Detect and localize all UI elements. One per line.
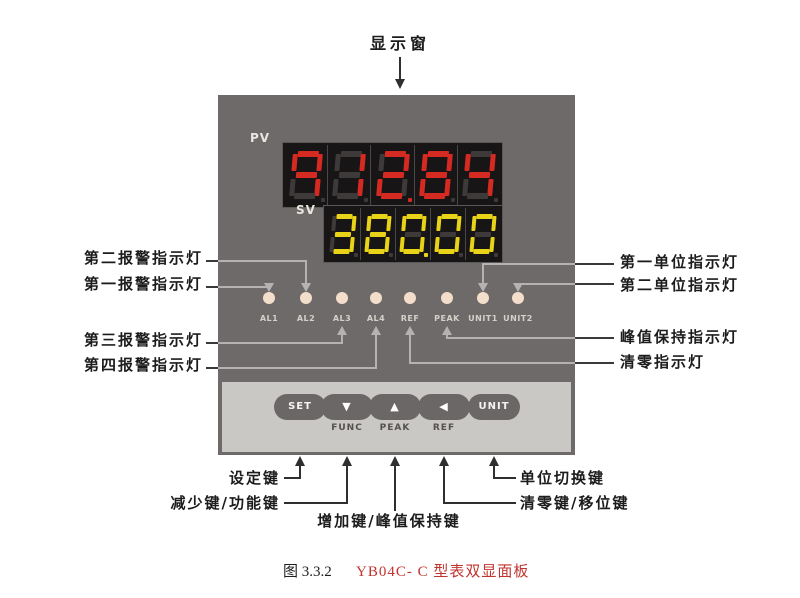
arrowhead-icon bbox=[337, 326, 347, 335]
arrowhead-icon bbox=[295, 456, 305, 466]
set-button[interactable]: SET bbox=[274, 394, 326, 420]
indicator-light-label: UNIT2 bbox=[496, 314, 540, 323]
seven-segment-digit bbox=[375, 151, 409, 199]
arrowhead-icon bbox=[371, 326, 381, 335]
leader-line bbox=[218, 286, 270, 288]
leader-line bbox=[575, 263, 614, 265]
digit-cell bbox=[396, 208, 431, 260]
arrowhead-icon bbox=[439, 456, 449, 466]
seven-segment-digit bbox=[462, 151, 496, 199]
seven-segment-digit bbox=[289, 151, 323, 199]
leader-line bbox=[493, 466, 495, 479]
callout-label-left-0: 第二报警指示灯 bbox=[84, 250, 203, 266]
digit-cell bbox=[328, 145, 371, 205]
indicator-light-unit1 bbox=[477, 292, 489, 304]
decimal-point bbox=[354, 253, 358, 257]
leader-line bbox=[409, 335, 411, 364]
up-triangle-icon: ▲ bbox=[390, 400, 399, 413]
callout-label-right-0: 第一单位指示灯 bbox=[620, 254, 739, 270]
leader-line bbox=[517, 283, 575, 285]
figure-page: 显示窗 PV SV NS+ AL1AL2AL3AL4REFPEAKUNIT1UN… bbox=[0, 0, 800, 598]
digit-cell bbox=[285, 145, 328, 205]
leader-line bbox=[575, 362, 614, 364]
arrowhead-icon bbox=[264, 283, 274, 292]
leader-line bbox=[482, 263, 484, 283]
digit-cell bbox=[431, 208, 466, 260]
seven-segment-digit bbox=[329, 214, 356, 254]
seven-segment-digit bbox=[364, 214, 391, 254]
down-triangle-icon: ▼ bbox=[342, 400, 351, 413]
arrowhead-icon bbox=[442, 326, 452, 335]
shift-ref-button[interactable]: ◀ bbox=[418, 394, 470, 420]
leader-line bbox=[218, 260, 307, 262]
leader-line bbox=[341, 335, 343, 344]
arrowhead-icon bbox=[405, 326, 415, 335]
digit-cell bbox=[458, 145, 500, 205]
decimal-point bbox=[408, 198, 412, 202]
decimal-point bbox=[321, 198, 325, 202]
button-sublabel: REF bbox=[414, 423, 474, 433]
indicator-light-al2 bbox=[300, 292, 312, 304]
callout-label-bottom-3: 清零键/移位键 bbox=[520, 495, 629, 511]
digit-cell bbox=[371, 145, 414, 205]
leader-line bbox=[284, 502, 348, 504]
leader-line bbox=[305, 260, 307, 283]
digit-cell bbox=[466, 208, 500, 260]
sv-display bbox=[323, 205, 503, 263]
digit-cell bbox=[326, 208, 361, 260]
pv-display bbox=[282, 142, 503, 208]
leader-line bbox=[493, 477, 516, 479]
indicator-light-peak bbox=[441, 292, 453, 304]
leader-line bbox=[575, 283, 614, 285]
seven-segment-digit bbox=[332, 151, 366, 199]
leader-line bbox=[446, 337, 575, 339]
meter-panel: PV SV NS+ AL1AL2AL3AL4REFPEAKUNIT1UNIT2S… bbox=[218, 95, 575, 455]
digit-cell bbox=[361, 208, 396, 260]
indicator-light-ref bbox=[404, 292, 416, 304]
seven-segment-digit bbox=[419, 151, 453, 199]
leader-line bbox=[346, 466, 348, 504]
callout-label-left-2: 第三报警指示灯 bbox=[84, 332, 203, 348]
arrowhead-icon bbox=[478, 283, 488, 292]
callout-label-bottom-0: 设定键 bbox=[229, 470, 280, 486]
indicator-light-al4 bbox=[370, 292, 382, 304]
figure-title: YB04C- C 型表双显面板 bbox=[356, 560, 529, 581]
callout-label-left-1: 第一报警指示灯 bbox=[84, 276, 203, 292]
unit-button[interactable]: UNIT bbox=[468, 394, 520, 420]
sv-label: SV bbox=[296, 203, 316, 217]
seven-segment-digit bbox=[434, 214, 461, 254]
arrowhead-icon bbox=[390, 456, 400, 466]
left-triangle-icon: ◀ bbox=[439, 400, 448, 413]
leader-line bbox=[394, 466, 396, 511]
decimal-point bbox=[494, 253, 498, 257]
arrowhead-icon bbox=[301, 283, 311, 292]
leader-line bbox=[299, 466, 301, 479]
arrowhead-icon bbox=[513, 283, 523, 292]
callout-label-right-1: 第二单位指示灯 bbox=[620, 277, 739, 293]
decimal-point bbox=[389, 253, 393, 257]
indicator-light-al3 bbox=[336, 292, 348, 304]
arrowhead-icon bbox=[395, 79, 405, 89]
decimal-point bbox=[424, 253, 428, 257]
leader-line bbox=[409, 362, 575, 364]
arrowhead-icon bbox=[489, 456, 499, 466]
leader-line bbox=[446, 335, 448, 339]
callout-label-bottom-2: 增加键/峰值保持键 bbox=[299, 513, 479, 529]
decimal-point bbox=[459, 253, 463, 257]
leader-line bbox=[482, 263, 575, 265]
display-window-label: 显示窗 bbox=[340, 30, 460, 54]
callout-label-left-3: 第四报警指示灯 bbox=[84, 357, 203, 373]
decimal-point bbox=[451, 198, 455, 202]
indicator-light-unit2 bbox=[512, 292, 524, 304]
leader-line bbox=[443, 466, 445, 504]
callout-label-right-2: 峰值保持指示灯 bbox=[620, 329, 739, 345]
decimal-point bbox=[364, 198, 368, 202]
leader-line bbox=[375, 335, 377, 369]
leader-line bbox=[443, 502, 516, 504]
increase-peak-button[interactable]: ▲ bbox=[369, 394, 421, 420]
leader-line bbox=[575, 337, 614, 339]
arrowhead-icon bbox=[342, 456, 352, 466]
figure-number: 图 3.3.2 bbox=[283, 560, 332, 581]
decrease-func-button[interactable]: ▼ bbox=[321, 394, 373, 420]
callout-label-bottom-4: 单位切换键 bbox=[520, 470, 605, 486]
leader-line bbox=[399, 57, 401, 79]
seven-segment-digit bbox=[469, 214, 496, 254]
decimal-point bbox=[494, 198, 498, 202]
indicator-light-al1 bbox=[263, 292, 275, 304]
pv-label: PV bbox=[250, 131, 270, 145]
callout-label-right-3: 清零指示灯 bbox=[620, 354, 705, 370]
leader-line bbox=[218, 367, 377, 369]
callout-label-bottom-1: 减少键/功能键 bbox=[171, 495, 280, 511]
leader-line bbox=[218, 342, 343, 344]
digit-cell bbox=[415, 145, 458, 205]
seven-segment-digit bbox=[399, 214, 426, 254]
